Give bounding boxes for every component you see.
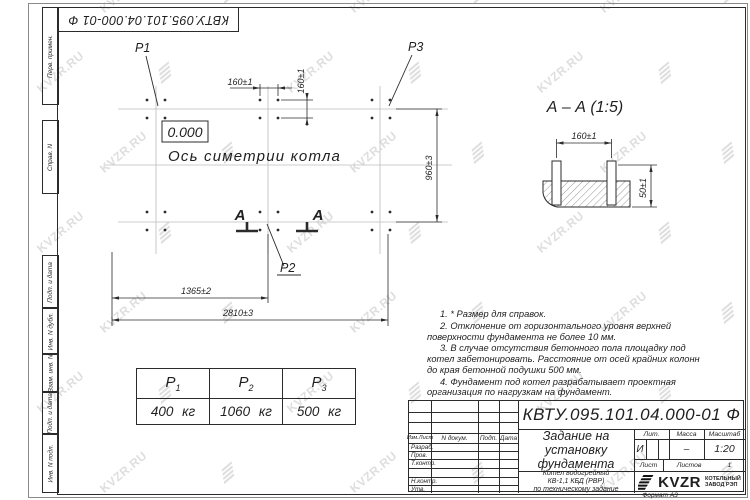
notes-block: 1. * Размер для справок. 2. Отклонение о… <box>427 309 710 399</box>
section-view-geometry <box>543 161 630 207</box>
dim-half-length-1365: 1365±2 <box>181 286 211 296</box>
point-label-p3: P3 <box>408 40 423 54</box>
load-table-value-row: 400 кг 1060 кг 500 кг <box>137 399 356 425</box>
drawing-name: Задание на установку фундамента <box>518 429 634 471</box>
plan-dimension-lines <box>112 84 442 326</box>
note-1: 1. * Размер для справок. <box>427 309 710 320</box>
format-label-text: Формат А3 <box>642 492 678 499</box>
point-label-p1: P1 <box>135 41 150 55</box>
doc-number: КВТУ.095.101.04.000-01 Ф <box>518 401 745 429</box>
role-prov: Пров. <box>409 451 431 459</box>
elevation-mark: 0.000 <box>167 124 202 140</box>
load-header-p2: P2 <box>210 369 283 399</box>
drawing-name-line: фундамента <box>538 457 615 471</box>
role-utv: Утв. <box>409 485 431 493</box>
product-name: Котел водогрейный КВ-1,1 КБД (РВР) по те… <box>518 471 634 493</box>
drawing-name-line: установку <box>545 443 607 457</box>
load-value-p1: 400 кг <box>137 399 210 425</box>
product-name-line: КВ-1,1 КБД (РВР) <box>548 478 605 486</box>
section-letter-right: А <box>312 207 324 224</box>
dim-section-bolt-height: 50±1 <box>638 178 648 198</box>
title-block: Изм.Лист N докум. Подп. Дата Разраб. Про… <box>408 400 744 492</box>
load-header-p1: P1 <box>137 369 210 399</box>
load-header-p3: P3 <box>283 369 356 399</box>
role-nkontr: Н.контр. <box>409 477 431 485</box>
col-data: Дата <box>499 433 518 443</box>
note-3: 3. В случае отсутствия бетонного пола пл… <box>427 343 710 375</box>
sheets-cell: Листов 1 <box>663 459 745 471</box>
load-value-p3: 500 кг <box>283 399 356 425</box>
scale-header: Масштаб <box>704 429 745 439</box>
litera-value: И <box>634 439 646 459</box>
mass-header: Масса <box>669 429 704 439</box>
dim-length-2810: 2810±3 <box>222 308 253 318</box>
sheets-value: 1 <box>727 462 731 469</box>
scale-value: 1:20 <box>704 439 745 459</box>
product-name-line: Котел водогрейный <box>543 470 610 478</box>
kvzr-logo-text: KVZR <box>658 474 701 491</box>
role-razrab: Разраб. <box>409 443 431 451</box>
dim-bolt-spacing-y: 160±1 <box>296 69 306 94</box>
sheets-header: Листов <box>677 462 702 469</box>
plan-dimension-arrows <box>112 86 439 321</box>
kvzr-logo-tagline: КОТЕЛЬНЫЙ ЗАВОД РЭП <box>705 476 741 489</box>
role-tkontr: Т.контр. <box>409 459 431 468</box>
load-table-header-row: P1 P2 P3 <box>137 369 356 399</box>
role-empty <box>409 468 431 477</box>
note-2: 2. Отклонение от горизонтального уровня … <box>427 321 710 343</box>
product-name-line: по техническому задание <box>533 486 618 494</box>
mass-value: – <box>669 439 704 459</box>
drawing-name-line: Задание на <box>543 429 610 443</box>
foundation-bolt-left <box>552 161 561 205</box>
col-n-dokum: N докум. <box>431 433 478 443</box>
foundation-bolt-right <box>607 161 616 205</box>
col-podp: Подп. <box>478 433 499 443</box>
litera-header: Лит. <box>634 429 669 439</box>
note-4: 4. Фундамент под котел разрабатывает про… <box>427 377 710 399</box>
dim-section-bolt-spacing: 160±1 <box>572 131 597 141</box>
dim-width-960: 960±3 <box>424 156 434 181</box>
point-label-p2: P2 <box>280 261 295 275</box>
kvzr-logo-icon <box>638 474 654 491</box>
boiler-symmetry-axis-label: Ось симетрии котла <box>168 148 341 165</box>
load-value-p2: 1060 кг <box>210 399 283 425</box>
sheet-header: Лист <box>634 459 663 471</box>
company-logo: KVZR КОТЕЛЬНЫЙ ЗАВОД РЭП <box>634 471 745 493</box>
section-view-title: А – А (1:5) <box>546 99 623 116</box>
col-izm-list: Изм.Лист <box>409 433 431 443</box>
load-table: P1 P2 P3 400 кг 1060 кг 500 кг <box>136 368 356 425</box>
dim-bolt-spacing-x: 160±1 <box>228 77 253 87</box>
format-label: Формат А3 <box>620 492 700 499</box>
drawing-sheet: KVZR.RUKVZR.RUKVZR.RUKVZR.RUKVZR.RUKVZR.… <box>0 0 750 500</box>
section-letter-left: А <box>234 207 246 224</box>
